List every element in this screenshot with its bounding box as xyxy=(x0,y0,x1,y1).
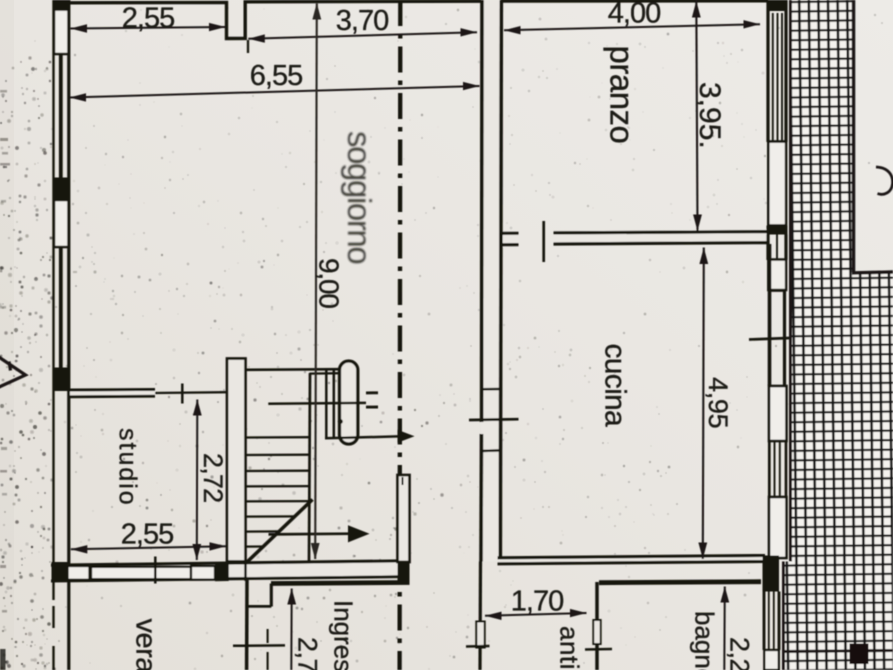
svg-text:2,55: 2,55 xyxy=(122,3,174,35)
svg-text:9,00: 9,00 xyxy=(314,258,345,308)
svg-text:2,72: 2,72 xyxy=(198,453,228,502)
svg-text:cucina: cucina xyxy=(599,344,632,428)
svg-text:2,55: 2,55 xyxy=(121,519,173,551)
svg-text:2,7: 2,7 xyxy=(293,637,323,670)
svg-text:anti: anti xyxy=(555,626,585,670)
svg-text:3,70: 3,70 xyxy=(336,5,388,37)
svg-text:pranzo: pranzo xyxy=(604,46,641,144)
svg-text:soggiorno: soggiorno xyxy=(341,131,378,263)
svg-text:2,2: 2,2 xyxy=(725,637,755,670)
svg-text:bagno: bagno xyxy=(690,611,720,670)
svg-text:veran: veran xyxy=(130,619,162,670)
svg-text:4,95: 4,95 xyxy=(703,377,733,428)
svg-text:4,00: 4,00 xyxy=(608,0,660,30)
svg-text:studio: studio xyxy=(114,428,142,507)
svg-text:3,95.: 3,95. xyxy=(693,82,726,149)
svg-text:1,70: 1,70 xyxy=(511,586,563,618)
svg-text:Ingres: Ingres xyxy=(329,600,359,670)
svg-text:6,55: 6,55 xyxy=(250,60,302,92)
